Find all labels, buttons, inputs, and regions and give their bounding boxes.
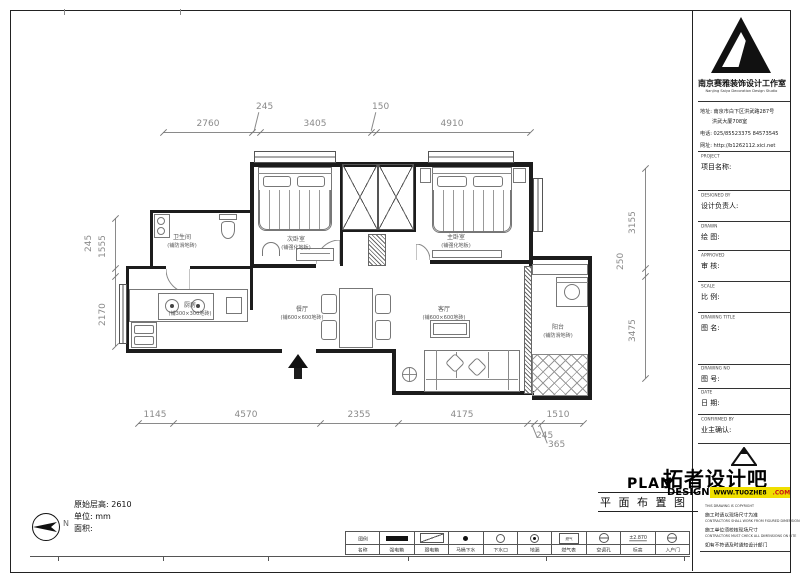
legend-cell-header: 图例 名称	[346, 532, 379, 554]
dim-line-left	[115, 218, 116, 346]
field-drawingtitle-en: DRAWING TITLE	[701, 315, 735, 320]
copyright-line: THIS DRAWING IS COPYRIGHT	[705, 504, 754, 508]
room-label-living: 客厅 (铺600×600地砖)	[419, 306, 470, 322]
dim-label: 2355	[332, 410, 386, 420]
floor-drain-icon	[402, 367, 417, 382]
sofa-armrest	[436, 350, 437, 390]
window-icon	[428, 151, 514, 163]
info-unit: 单位: mm	[74, 511, 111, 522]
separator	[698, 250, 790, 251]
legend-cell-entry-door: 入户门	[655, 532, 689, 554]
separator	[698, 101, 790, 102]
dim-line-top	[163, 132, 530, 133]
field-confirmedby-cn: 业主确认:	[701, 425, 731, 435]
dim-label: 1555	[98, 228, 108, 258]
room-note: (铺300×300地砖)	[168, 311, 211, 318]
gas-meter-icon: 燃气	[559, 533, 579, 544]
separator	[698, 221, 790, 222]
coffee-table-inner	[433, 323, 467, 335]
chair	[321, 320, 337, 340]
room-label-master-bedroom: 主卧室 (铺强化地板)	[439, 234, 474, 250]
dim-label: 3405	[285, 119, 345, 129]
room-label-kitchen: 厨房 (铺300×300地砖)	[165, 302, 216, 318]
company-website: 网址: http://b1262112.xici.net	[700, 141, 775, 149]
toilet-bowl	[221, 221, 235, 239]
dim-label: 2170	[98, 296, 108, 326]
chair	[375, 320, 391, 340]
field-date-cn: 日 期:	[701, 398, 720, 408]
sink-basin	[134, 336, 154, 345]
ac-hole-icon	[599, 533, 609, 543]
separator	[698, 281, 790, 282]
company-phone: 电话: 025/85523375 84573545	[700, 129, 779, 137]
dim-line-bottom	[138, 423, 583, 424]
wall	[252, 264, 316, 268]
bottom-rule-tick	[546, 556, 547, 561]
legend-cell-toilet-drain: 马桶下水	[448, 532, 482, 554]
room-name: 阳台	[541, 324, 576, 332]
wall	[126, 266, 166, 269]
bed-headboard	[432, 173, 512, 174]
drain-outlet-icon	[496, 534, 505, 543]
separator	[698, 312, 790, 313]
dim-tick	[527, 129, 534, 136]
tuozhe-url-main: WWW.TUOZHE8	[713, 489, 766, 496]
balcony-cabinet	[532, 264, 588, 275]
kitchen-appliance	[226, 297, 242, 314]
legend-cell-ac-hole: 空调孔	[586, 532, 620, 554]
info-area: 面积:	[74, 523, 93, 534]
north-arrow-icon	[31, 512, 61, 542]
sofa-divider	[488, 352, 489, 378]
x-hatch-icon	[342, 164, 378, 230]
field-drawingno-en: DRAWING NO	[701, 366, 730, 371]
dim-label: 2760	[178, 119, 238, 129]
legend-cell-strong-box: 强电箱	[379, 532, 413, 554]
dim-label: 4175	[435, 410, 489, 420]
dim-label: 245	[256, 102, 273, 112]
room-name: 厨房	[165, 302, 216, 310]
field-drawn-cn: 绘 图:	[701, 232, 720, 242]
bottom-rule-tick	[268, 556, 269, 561]
desk-line	[300, 253, 330, 254]
window-icon	[254, 151, 336, 163]
wall	[392, 349, 396, 395]
floor-drain-icon	[530, 534, 539, 543]
field-confirmedby-en: CONFIRMED BY	[701, 417, 734, 422]
field-date-en: DATE	[701, 390, 712, 395]
separator	[698, 190, 790, 191]
dim-label: 150	[372, 102, 389, 112]
wall	[532, 256, 590, 260]
room-name: 卫生间	[165, 234, 200, 242]
sink-basin	[134, 325, 154, 334]
dim-tick	[580, 420, 587, 427]
room-label-balcony: 阳台 (铺防滑地砖)	[541, 324, 576, 340]
window-icon	[533, 178, 543, 232]
field-approved-en: APPROVED	[701, 253, 725, 258]
dim-label: 4910	[422, 119, 482, 129]
wall	[190, 266, 252, 269]
room-label-second-bedroom: 次卧室 (铺强化地板)	[279, 236, 314, 252]
separator	[698, 414, 790, 415]
dim-label: 3475	[628, 308, 638, 342]
wall	[150, 210, 250, 213]
toilet-drain-icon	[463, 536, 468, 541]
sofa-armrest	[508, 350, 509, 390]
balcony-sliding-door	[524, 266, 532, 394]
room-name: 主卧室	[439, 234, 474, 242]
field-scale-cn: 比 例:	[701, 292, 720, 302]
entry-door-icon	[667, 533, 677, 543]
legend-cell-drain-outlet: 下水口	[483, 532, 517, 554]
dim-label: 4570	[219, 410, 273, 420]
room-note: (铺强化地板)	[441, 243, 470, 250]
wall	[316, 349, 394, 353]
legend-cell-gas-meter: 燃气 空调孔 燃气表	[551, 532, 585, 554]
company-address-line2: 洪武大厦708室	[712, 117, 747, 125]
dim-label: 3155	[628, 200, 638, 234]
pillow	[297, 176, 325, 187]
strong-electric-box-icon	[386, 536, 408, 541]
bottom-rule	[30, 556, 690, 557]
company-address-line1: 地址: 南京市白下区洪武路287号	[700, 107, 774, 115]
entry-arrow-stem	[294, 368, 302, 379]
toilet-tank	[219, 214, 237, 220]
company-logo-icon	[710, 16, 772, 74]
legend-cell-weak-box: 弱电箱	[414, 532, 448, 554]
sofa-back-line	[426, 379, 518, 380]
nightstand	[513, 168, 526, 183]
title-rule-bottom	[598, 511, 698, 512]
drain-cross-v	[409, 368, 410, 381]
floor-plan: 卫生间 (铺防滑地砖) 次卧室 (铺强化地板) 主卧室 (铺强化地板) 厨房 (…	[0, 0, 692, 581]
dim-label: 250	[616, 240, 626, 270]
north-label: N	[63, 519, 69, 528]
bottom-rule-tick	[684, 556, 685, 561]
dim-label: 245	[84, 222, 94, 252]
shaft-hatch-box	[340, 162, 416, 232]
copyright-line: CONTRACTORS MUST CHECK ALL DIMENSIONS ON…	[705, 534, 796, 538]
copyright-line: 施工单位须校核现场尺寸	[705, 526, 758, 533]
washer-drum-icon	[564, 284, 580, 300]
field-drawingtitle-cn: 图 名:	[701, 323, 720, 333]
wall	[340, 232, 343, 266]
dim-line-right	[645, 168, 646, 378]
room-note: (铺防滑地砖)	[167, 243, 196, 250]
x-hatch-icon	[378, 164, 414, 230]
dim-label: 1510	[531, 410, 585, 420]
basin-icon	[157, 217, 165, 225]
separator	[698, 443, 790, 444]
pillow	[263, 176, 291, 187]
tuozhe-url-tld: .COM	[772, 489, 790, 496]
room-note: (铺强化地板)	[281, 245, 310, 252]
bedside-lamp	[262, 242, 280, 256]
bottom-rule-tick	[163, 556, 164, 561]
legend-label: 名称	[349, 546, 376, 553]
weak-electric-box-icon	[420, 533, 444, 543]
dining-table	[339, 288, 373, 348]
copyright-line: CONTRACTORS SHALL WORK FROM FIGURED DIME…	[705, 519, 800, 523]
legend-label: 弱电箱	[418, 546, 445, 553]
pillow	[473, 176, 503, 187]
field-project-cn: 项目名称:	[701, 162, 731, 172]
dim-tick	[642, 375, 649, 382]
chair	[375, 294, 391, 314]
window-icon	[119, 284, 127, 344]
legend-label: 马桶下水	[453, 546, 480, 553]
room-note: (铺600×600地砖)	[280, 315, 323, 322]
legend-label: 标高	[625, 546, 652, 553]
wall	[588, 256, 592, 400]
field-drawingno-cn: 图 号:	[701, 374, 720, 384]
field-approved-cn: 审 核:	[701, 261, 720, 271]
separator	[700, 551, 790, 552]
room-label-dining: 餐厅 (铺600×600地砖)	[277, 306, 328, 322]
wall	[430, 260, 533, 264]
entry-arrow	[288, 354, 308, 368]
legend-label: 下水口	[487, 546, 514, 553]
legend-table: 图例 名称 强电箱 弱电箱 马桶下水 下水口 地漏 燃气 空调孔 燃气表 空调孔…	[345, 531, 690, 555]
bed-duvet	[259, 190, 331, 230]
field-drawn-en: DRAWN	[701, 224, 717, 229]
wall	[254, 349, 282, 353]
copyright-line: 施工时请以现场尺寸为准	[705, 511, 758, 518]
bottom-rule-tick	[58, 556, 59, 561]
wall	[532, 396, 590, 400]
legend-label: 强电箱	[384, 546, 411, 553]
level-mark: ±2.870	[629, 535, 647, 541]
company-name-en: Nanjing Saiya Decoration Design Studio	[694, 89, 789, 93]
separator	[698, 388, 790, 389]
bed-headboard	[258, 173, 332, 174]
door-arc	[416, 244, 430, 260]
wall	[250, 162, 254, 268]
bottom-rule-tick	[408, 556, 409, 561]
field-designedby-en: DESIGNED BY	[701, 193, 730, 198]
company-name-cn: 南京赛雅装饰设计工作室	[694, 78, 790, 89]
room-note: (铺防滑地砖)	[543, 333, 572, 340]
legend-label: 空调孔	[590, 546, 617, 553]
field-project-en: PROJECT	[701, 154, 720, 159]
hatched-wall	[368, 234, 386, 266]
nightstand	[420, 168, 431, 183]
legend-label: 燃气表	[556, 546, 583, 553]
room-note: (铺600×600地砖)	[422, 315, 465, 322]
room-label-bathroom: 卫生间 (铺防滑地砖)	[165, 234, 200, 250]
tv-cabinet	[432, 250, 502, 258]
legend-label: 入户门	[659, 546, 686, 553]
legend-label: 地漏	[521, 546, 548, 553]
legend-header-symbol: 图例	[358, 534, 368, 541]
field-scale-en: SCALE	[701, 284, 715, 289]
tuozhe-url-bar: WWW.TUOZHE8.COM	[710, 487, 790, 498]
dim-label: 1145	[128, 410, 182, 420]
dim-label: 365	[548, 440, 565, 450]
separator	[698, 151, 790, 152]
legend-cell-level: ±2.870 标高	[620, 532, 654, 554]
wall	[250, 268, 253, 310]
info-floor-height: 原始层高: 2610	[74, 499, 132, 510]
room-name: 餐厅	[277, 306, 328, 314]
pillow	[437, 176, 467, 187]
bed-duvet	[433, 190, 511, 232]
room-name: 客厅	[419, 306, 470, 314]
dim-tick	[112, 343, 119, 350]
balcony-tile-floor	[532, 354, 588, 396]
separator	[698, 364, 790, 365]
wall	[150, 210, 153, 266]
wall	[126, 349, 254, 353]
dim-leader	[254, 112, 260, 131]
washer-panel-line	[556, 282, 588, 283]
room-name: 次卧室	[279, 236, 314, 244]
field-designedby-cn: 设计负责人:	[701, 201, 738, 211]
copyright-line: 如有不符请及时通知设计部门	[705, 541, 767, 548]
legend-cell-floor-drain: 地漏	[517, 532, 551, 554]
